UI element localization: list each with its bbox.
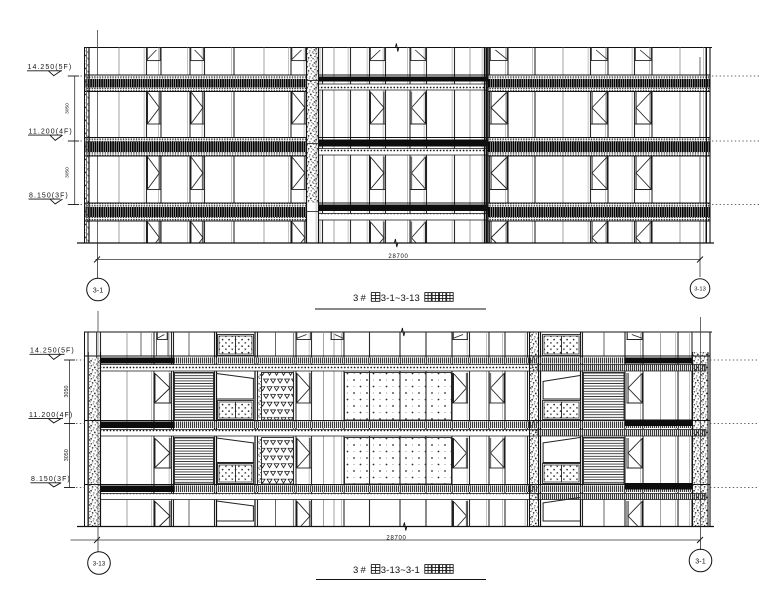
svg-text:3-1: 3-1 [93, 285, 103, 294]
svg-text:#: # [361, 293, 367, 304]
svg-text:3: 3 [353, 565, 358, 576]
svg-text:28700: 28700 [386, 535, 406, 541]
svg-text:14.250(5F): 14.250(5F) [30, 348, 75, 355]
svg-text:28700: 28700 [388, 254, 408, 260]
svg-text:3-13: 3-13 [694, 287, 706, 293]
svg-text:3-13~3-1: 3-13~3-1 [381, 565, 420, 576]
svg-text:3050: 3050 [64, 386, 70, 398]
svg-text:3-13: 3-13 [93, 561, 106, 568]
svg-text:14.250(5F): 14.250(5F) [28, 64, 73, 71]
svg-text:11.200(4F): 11.200(4F) [29, 412, 73, 419]
svg-text:3-1~3-13: 3-1~3-13 [381, 293, 420, 304]
svg-text:3050: 3050 [64, 167, 70, 178]
svg-text:8.150(3F): 8.150(3F) [29, 192, 69, 199]
svg-text:3: 3 [353, 293, 358, 304]
svg-text:11.200(4F): 11.200(4F) [29, 128, 73, 135]
svg-text:#: # [361, 565, 367, 576]
svg-text:3050: 3050 [64, 103, 70, 114]
svg-text:3-1: 3-1 [695, 556, 705, 565]
svg-text:8.150(3F): 8.150(3F) [31, 476, 71, 483]
svg-text:3050: 3050 [64, 449, 70, 461]
